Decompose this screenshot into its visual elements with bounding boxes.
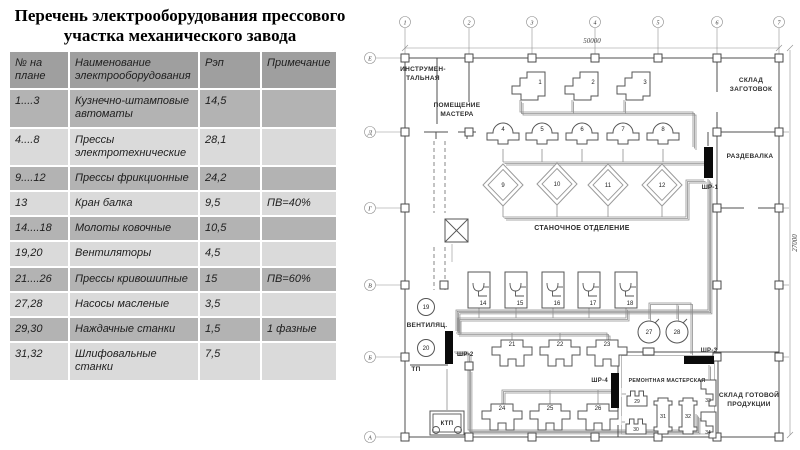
table-row: 27,28Насосы масленые3,5	[10, 293, 336, 316]
svg-text:24: 24	[499, 406, 506, 412]
machine-symbol-10: 10	[537, 163, 577, 205]
svg-text:17: 17	[590, 301, 597, 307]
table-cell: 14,5	[200, 90, 260, 126]
table-cell	[262, 293, 336, 316]
machine-symbol-24: 24	[482, 404, 522, 430]
svg-text:ШР-4: ШР-4	[591, 378, 608, 384]
table-cell	[262, 129, 336, 165]
svg-text:23: 23	[604, 342, 611, 348]
machine-symbol-crane	[445, 219, 468, 242]
svg-text:29: 29	[634, 399, 640, 405]
table-header-row: № на планеНаименование электрооборудован…	[10, 52, 336, 88]
table-row: 1....3Кузнечно-штамповые автоматы14,5	[10, 90, 336, 126]
machine-symbol-25: 25	[530, 404, 570, 430]
table-cell: 9,5	[200, 192, 260, 215]
svg-text:25: 25	[547, 406, 554, 412]
table-row: 19,20Вентиляторы4,5	[10, 242, 336, 265]
machine-symbol-6: 6	[566, 123, 598, 144]
table-cell: 19,20	[10, 242, 68, 265]
table-cell: 21....26	[10, 268, 68, 291]
svg-text:19: 19	[423, 305, 430, 311]
table-cell	[262, 167, 336, 190]
svg-text:Б: Б	[367, 355, 372, 361]
board-ТП: ТП	[411, 366, 420, 373]
table-cell: Кран балка	[70, 192, 198, 215]
machine-symbol-8: 8	[647, 123, 679, 144]
table-row: 4....8Прессы электротехнические28,1	[10, 129, 336, 165]
machine-symbol-22: 22	[540, 340, 580, 366]
room-label-machine-section: СТАНОЧНОЕ ОТДЕЛЕНИЕ	[534, 225, 630, 232]
machine-symbol-29: 29	[627, 391, 647, 406]
table-cell: 4,5	[200, 242, 260, 265]
dimension-height: 27000	[791, 234, 799, 252]
svg-text:ШР-3: ШР-3	[701, 348, 718, 354]
svg-text:Е: Е	[367, 56, 372, 62]
table-cell: Шлифовальные станки	[70, 343, 198, 379]
svg-text:А: А	[367, 435, 372, 441]
svg-text:3: 3	[530, 20, 534, 26]
machine-symbol-1: 1	[512, 72, 545, 100]
column-header: Наименование электрооборудования	[70, 52, 198, 88]
machine-symbol-12: 12	[642, 164, 682, 206]
machine-symbol-9: 9	[483, 164, 523, 206]
table-cell	[262, 217, 336, 240]
svg-text:16: 16	[554, 301, 561, 307]
svg-text:1: 1	[404, 20, 407, 26]
svg-text:11: 11	[605, 183, 612, 189]
svg-text:12: 12	[659, 183, 666, 189]
table-cell: 7,5	[200, 343, 260, 379]
table-cell: Молоты ковочные	[70, 217, 198, 240]
svg-text:30: 30	[633, 427, 639, 433]
room-label-finished-warehouse: СКЛАД ГОТОВОЙПРОДУКЦИИ	[719, 390, 779, 408]
machine-symbol-14: 14	[468, 272, 490, 308]
equipment-table: № на планеНаименование электрооборудован…	[8, 50, 338, 382]
svg-text:31: 31	[660, 414, 666, 420]
svg-text:15: 15	[517, 301, 524, 307]
table-row: 14....18Молоты ковочные10,5	[10, 217, 336, 240]
table-cell: Прессы кривошипные	[70, 268, 198, 291]
table-cell: Прессы электротехнические	[70, 129, 198, 165]
table-row: 29,30Наждачные станки1,51 фазные	[10, 318, 336, 341]
table-cell: 29,30	[10, 318, 68, 341]
machine-symbol-4: 4	[487, 123, 519, 144]
svg-text:21: 21	[509, 342, 516, 348]
table-cell: Насосы масленые	[70, 293, 198, 316]
machine-symbol-11: 11	[588, 164, 628, 206]
equipment-panel: Перечень электрооборудования прессового …	[0, 0, 360, 382]
room-label-blank-warehouse: СКЛАДЗАГОТОВОК	[730, 77, 773, 93]
svg-text:22: 22	[557, 342, 564, 348]
table-cell: 27,28	[10, 293, 68, 316]
svg-text:34: 34	[705, 430, 711, 436]
svg-text:2: 2	[468, 20, 471, 26]
machine-symbol-16: 16	[542, 272, 564, 308]
floor-plan-drawing: 1234567891011121415161718192021222324252…	[360, 0, 800, 450]
table-cell: 9....12	[10, 167, 68, 190]
svg-text:27: 27	[646, 330, 653, 336]
board-КТП: КТП	[430, 411, 464, 435]
svg-text:28: 28	[674, 330, 681, 336]
table-cell: 24,2	[200, 167, 260, 190]
table-cell: 3,5	[200, 293, 260, 316]
room-label-ventilation: ВЕНТИЛЯЦ.	[407, 322, 448, 329]
board-ШР-4: ШР-4	[591, 373, 619, 408]
machine-symbol-5: 5	[526, 123, 558, 144]
table-cell: 4....8	[10, 129, 68, 165]
room-label-tool-room: ИНСТРУМЕН-ТАЛЬНАЯ	[400, 66, 446, 82]
table-cell: 1 фазные	[262, 318, 336, 341]
svg-text:32: 32	[685, 414, 691, 420]
table-cell: 15	[200, 268, 260, 291]
table-cell: 1,5	[200, 318, 260, 341]
machine-symbol-28: 28	[666, 319, 688, 343]
svg-text:Г: Г	[367, 206, 372, 212]
svg-text:ТП: ТП	[411, 366, 420, 373]
table-cell: Прессы фрикционные	[70, 167, 198, 190]
column-header: Рэп	[200, 52, 260, 88]
table-row: 31,32Шлифовальные станки7,5	[10, 343, 336, 379]
svg-text:ШР-2: ШР-2	[457, 352, 474, 358]
machine-symbol-15: 15	[505, 272, 527, 308]
table-cell: 1....3	[10, 90, 68, 126]
machine-symbol-20: 20	[418, 340, 435, 357]
machine-symbol-30: 30	[626, 419, 646, 434]
table-cell: 13	[10, 192, 68, 215]
svg-text:18: 18	[627, 301, 634, 307]
column-header: Примечание	[262, 52, 336, 88]
svg-text:14: 14	[480, 301, 487, 307]
table-cell: 14....18	[10, 217, 68, 240]
svg-text:7: 7	[778, 20, 782, 26]
room-label-master-room: ПОМЕЩЕНИЕМАСТЕРА	[434, 102, 481, 118]
table-cell: ПВ=40%	[262, 192, 336, 215]
table-cell: Наждачные станки	[70, 318, 198, 341]
svg-text:КТП: КТП	[441, 421, 454, 427]
table-row: 13Кран балка9,5ПВ=40%	[10, 192, 336, 215]
machine-symbol-3: 3	[617, 72, 650, 100]
table-cell: 31,32	[10, 343, 68, 379]
slide: Перечень электрооборудования прессового …	[0, 0, 800, 450]
machine-symbol-2: 2	[565, 72, 598, 100]
room-label-locker-room: РАЗДЕВАЛКА	[727, 153, 774, 160]
column-header: № на плане	[10, 52, 68, 88]
table-cell	[262, 242, 336, 265]
machine-symbol-31: 31	[654, 398, 672, 434]
board-ШР-1: ШР-1	[702, 147, 719, 191]
table-row: 9....12Прессы фрикционные24,2	[10, 167, 336, 190]
svg-text:4: 4	[594, 19, 597, 26]
machine-symbol-7: 7	[607, 123, 639, 144]
machine-symbol-23: 23	[587, 340, 627, 366]
svg-text:ШР-1: ШР-1	[702, 185, 719, 191]
svg-text:В: В	[368, 283, 372, 289]
board-ШР-3: ШР-3	[684, 348, 718, 364]
table-cell: 10,5	[200, 217, 260, 240]
machine-symbol-21: 21	[492, 340, 532, 366]
svg-text:33: 33	[705, 398, 711, 404]
table-cell: ПВ=60%	[262, 268, 336, 291]
svg-text:20: 20	[423, 346, 430, 352]
table-row: 21....26Прессы кривошипные15ПВ=60%	[10, 268, 336, 291]
svg-text:6: 6	[716, 20, 719, 26]
room-label-repair-shop: РЕМОНТНАЯ МАСТЕРСКАЯ	[629, 378, 706, 384]
table-cell: Кузнечно-штамповые автоматы	[70, 90, 198, 126]
table-cell	[262, 90, 336, 126]
svg-text:10: 10	[554, 182, 561, 188]
svg-text:26: 26	[595, 406, 602, 412]
machine-symbol-19: 19	[418, 299, 435, 316]
machine-symbol-32: 32	[679, 398, 697, 434]
machine-symbol-18: 18	[615, 272, 637, 308]
floor-plan: 1234567891011121415161718192021222324252…	[360, 0, 800, 450]
table-cell	[262, 343, 336, 379]
machine-symbol-17: 17	[578, 272, 600, 308]
page-title: Перечень электрооборудования прессового …	[6, 6, 354, 47]
table-cell: Вентиляторы	[70, 242, 198, 265]
table-cell: 28,1	[200, 129, 260, 165]
machine-symbol-27: 27	[638, 319, 660, 343]
dimension-width: 50000	[583, 37, 601, 45]
svg-text:5: 5	[657, 20, 660, 26]
svg-text:Д: Д	[367, 130, 373, 136]
